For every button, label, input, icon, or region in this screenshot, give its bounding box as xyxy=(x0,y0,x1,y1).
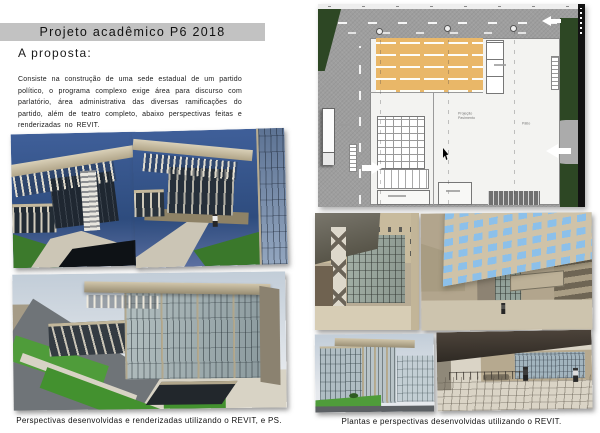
grid-line-2 xyxy=(448,24,449,204)
proposal-heading: A proposta: xyxy=(18,46,92,60)
glass-tower xyxy=(362,343,397,403)
render-dusk-perspective-2 xyxy=(132,128,288,268)
road xyxy=(315,405,434,412)
site-plan: Projeção Pavimento Pátio xyxy=(318,4,585,207)
grid-line-3 xyxy=(514,24,515,204)
render-interior-atrium xyxy=(315,213,419,330)
low-wing xyxy=(48,320,133,357)
room-lower-left xyxy=(377,190,430,205)
glass-fragment xyxy=(256,128,288,265)
label-patio: Pátio xyxy=(522,122,540,126)
label-smudge xyxy=(388,195,406,197)
traffic-arrow-left-icon xyxy=(542,16,551,26)
restroom-block xyxy=(377,116,425,169)
entry-arrow-left-tail xyxy=(558,148,571,154)
label-smudge xyxy=(338,124,350,126)
render-courtyard-skylights xyxy=(421,212,593,330)
portfolio-page: Projeto acadêmico P6 2018 A proposta: Co… xyxy=(0,0,600,433)
label-smudge xyxy=(446,190,460,192)
plan-edge-shadow xyxy=(578,4,585,207)
parking-area xyxy=(376,38,483,92)
floor xyxy=(315,306,419,330)
entry-arrow-right-icon xyxy=(372,162,382,174)
pedestrian xyxy=(573,368,578,382)
grid-bubble-3 xyxy=(510,25,517,32)
entry-arrow-left-icon xyxy=(546,144,558,158)
render-dusk-perspective-1 xyxy=(11,132,139,269)
landscape-top-left xyxy=(318,9,360,71)
low-wing xyxy=(12,203,57,233)
entry-arrow-right-tail xyxy=(362,165,372,171)
dimension-ticks xyxy=(328,6,578,7)
render-day-perspective xyxy=(12,271,287,410)
low-wing xyxy=(134,189,165,217)
lane-dashes-left xyxy=(359,46,361,204)
floor xyxy=(421,299,592,330)
street-sign-left xyxy=(349,144,357,172)
right-caption: Plantas e perspectivas desenvolvidas uti… xyxy=(318,417,585,426)
room-center xyxy=(438,182,472,205)
page-title: Projeto acadêmico P6 2018 xyxy=(39,25,225,39)
interior-wall-v xyxy=(433,92,434,205)
bike-rack xyxy=(483,374,509,380)
grid-bubble-2 xyxy=(444,25,451,32)
grid-bubble-1 xyxy=(376,28,383,35)
pedestrian xyxy=(501,303,505,314)
glass-block-left xyxy=(320,346,362,400)
small-rooms xyxy=(377,169,429,189)
label-smudge xyxy=(494,64,506,66)
paving-joints xyxy=(437,375,593,412)
core-shafts xyxy=(486,40,504,94)
label-projecao: Projeção Pavimento xyxy=(458,112,489,120)
column xyxy=(411,213,419,330)
landscape-right xyxy=(560,18,580,207)
proposal-paragraph: Consiste na construção de uma sede estad… xyxy=(18,74,242,132)
interior-wall-h xyxy=(370,92,483,93)
title-bar: Projeto acadêmico P6 2018 xyxy=(0,23,265,41)
traffic-arrow-left-tail xyxy=(551,19,561,23)
grid-line-1 xyxy=(380,24,381,204)
side-wall-right xyxy=(259,286,280,385)
pedestrian xyxy=(523,367,528,381)
street-sign-right xyxy=(551,56,559,90)
render-entrance-plaza xyxy=(436,330,592,412)
render-exterior-lawn xyxy=(315,333,435,412)
glass-block-right xyxy=(397,355,434,401)
left-caption: Perspectivas desenvolvidas e renderizada… xyxy=(0,416,298,425)
bush xyxy=(349,393,358,398)
truck-cab xyxy=(323,152,334,165)
perforated-canopy xyxy=(86,295,158,309)
pedestrian xyxy=(212,214,217,227)
lane-dashes-top xyxy=(338,22,570,24)
street-label-vertical xyxy=(580,8,582,34)
x-braced-tower xyxy=(331,227,346,311)
